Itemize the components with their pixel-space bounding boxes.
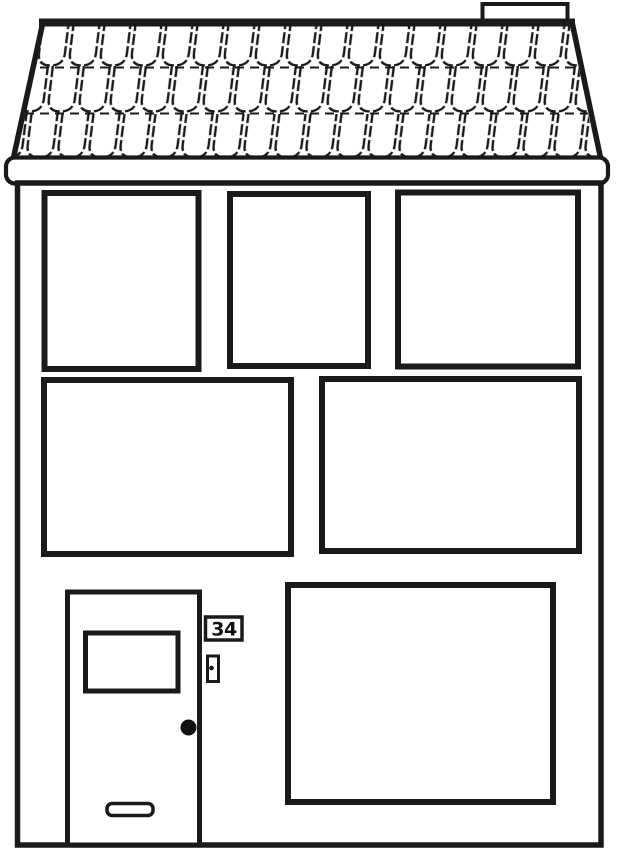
roof-shingles (10, 20, 610, 162)
house-illustration: 34 (0, 0, 617, 855)
window-top-center (230, 194, 368, 366)
window-top-left (45, 193, 199, 369)
doorbell (208, 656, 219, 682)
mail-slot (107, 804, 153, 816)
eave-band (6, 158, 608, 184)
door (68, 592, 200, 845)
window-middle-right (322, 379, 579, 551)
house-drawing-svg: 34 (0, 0, 617, 855)
house-number-text: 34 (211, 619, 237, 641)
window-top-right (398, 193, 578, 367)
window-bottom-right (288, 585, 553, 802)
door-window (86, 633, 179, 691)
window-middle-left (44, 380, 291, 554)
roof (10, 20, 610, 162)
doorknob (181, 720, 197, 736)
doorbell-button (209, 666, 214, 671)
house-number-plate: 34 (206, 617, 243, 641)
